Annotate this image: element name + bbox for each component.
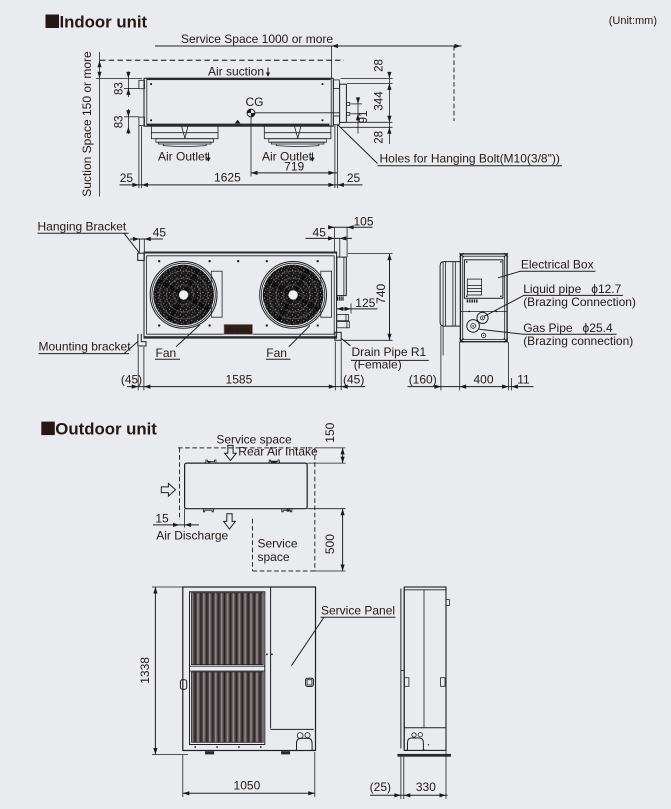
svg-text:344: 344 [374,91,386,111]
svg-text:Kubota: Kubota [227,327,250,334]
svg-text:Fan: Fan [156,346,177,360]
svg-text:91: 91 [358,111,370,124]
svg-text:(45): (45) [343,372,364,386]
svg-text:150: 150 [323,422,337,442]
svg-text:11: 11 [517,373,530,387]
svg-text:28: 28 [374,131,386,144]
svg-text:(Unit:mm): (Unit:mm) [609,15,657,27]
svg-text:Holes for Hanging Bolt(M10(3/8: Holes for Hanging Bolt(M10(3/8")) [380,152,560,166]
svg-text:25: 25 [347,171,361,185]
svg-text:(45): (45) [121,372,142,386]
svg-text:Service Space 1000 or more: Service Space 1000 or more [181,32,333,46]
svg-text:Air suction: Air suction [208,65,264,79]
svg-text:719: 719 [284,160,304,174]
svg-text:Air Discharge: Air Discharge [156,528,228,542]
svg-text:330: 330 [416,780,436,794]
svg-text:(160): (160) [409,373,437,387]
svg-text:(25): (25) [370,780,391,794]
svg-text:15: 15 [155,511,169,525]
svg-text:83: 83 [113,115,125,128]
svg-text:1338: 1338 [138,657,152,684]
svg-text:Mounting bracket: Mounting bracket [39,339,132,353]
svg-text:45: 45 [153,225,167,239]
svg-text:Rear Air Intake: Rear Air Intake [238,445,318,459]
svg-text:Outdoor unit: Outdoor unit [55,420,157,439]
svg-text:CG: CG [246,95,264,109]
svg-text:Hanging Bracket: Hanging Bracket [38,220,127,234]
svg-text:1585: 1585 [226,372,253,386]
svg-text:125: 125 [355,296,375,310]
svg-text:(Brazing Connection): (Brazing Connection) [523,295,636,309]
svg-text:400: 400 [473,373,493,387]
svg-text:Electrical Box: Electrical Box [521,258,594,272]
svg-text:Air Outlet: Air Outlet [158,150,209,164]
svg-text:Indoor unit: Indoor unit [60,13,148,32]
svg-text:1625: 1625 [214,171,241,185]
svg-text:500: 500 [323,534,337,554]
svg-text:105: 105 [353,215,373,229]
svg-text:25: 25 [120,171,134,185]
svg-text:Service: Service [258,536,298,550]
svg-text:space: space [258,550,290,564]
svg-text:(Female): (Female) [354,358,402,372]
svg-text:(Brazing connection): (Brazing connection) [523,334,633,348]
svg-text:83: 83 [113,82,125,95]
svg-text:Service Panel: Service Panel [321,604,395,618]
svg-text:45: 45 [313,226,327,240]
svg-text:1050: 1050 [234,779,261,793]
svg-text:28: 28 [374,59,386,72]
svg-text:740: 740 [374,283,388,303]
svg-text:Gas Pipe ϕ25.4: Gas Pipe ϕ25.4 [523,321,613,335]
svg-text:Fan: Fan [266,346,287,360]
svg-text:Suction Space 150 or more: Suction Space 150 or more [80,51,94,197]
